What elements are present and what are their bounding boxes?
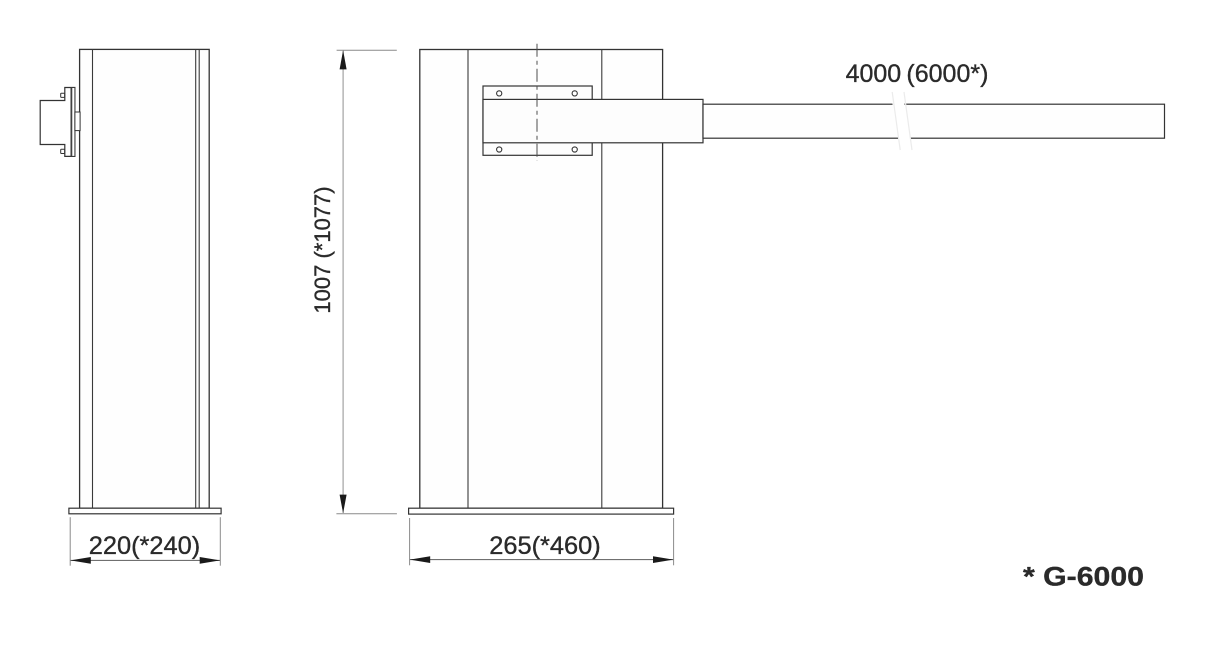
svg-text:* G-6000: * G-6000	[1023, 562, 1144, 592]
svg-text:220(*240): 220(*240)	[89, 532, 201, 560]
svg-text:4000(6000*): 4000(6000*)	[846, 60, 989, 88]
svg-text:265(*460): 265(*460)	[489, 532, 601, 560]
svg-text:1007 (*1077): 1007 (*1077)	[310, 186, 335, 313]
